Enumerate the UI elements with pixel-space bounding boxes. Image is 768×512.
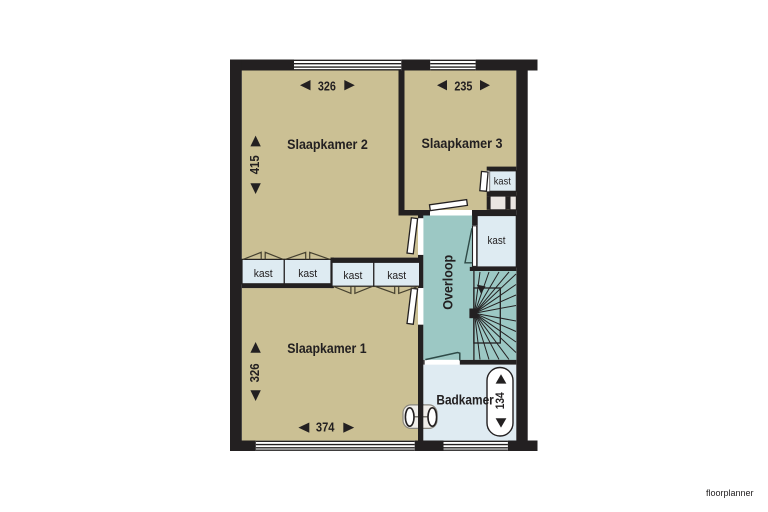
svg-text:floorplanner: floorplanner (706, 488, 754, 498)
svg-text:374: 374 (316, 420, 335, 435)
svg-text:134: 134 (495, 392, 507, 410)
svg-text:kast: kast (298, 268, 317, 280)
svg-text:kast: kast (343, 270, 362, 282)
svg-text:Badkamer: Badkamer (436, 392, 494, 407)
svg-text:Slaapkamer 3: Slaapkamer 3 (422, 136, 503, 151)
svg-text:326: 326 (247, 363, 262, 382)
svg-text:Overloop: Overloop (440, 255, 455, 310)
svg-text:kast: kast (494, 175, 511, 187)
svg-text:415: 415 (247, 155, 262, 174)
svg-text:326: 326 (318, 78, 336, 93)
svg-text:Slaapkamer 2: Slaapkamer 2 (287, 137, 368, 152)
svg-text:kast: kast (387, 270, 406, 282)
svg-text:235: 235 (454, 78, 472, 93)
svg-text:kast: kast (488, 235, 506, 247)
svg-text:Slaapkamer 1: Slaapkamer 1 (287, 341, 367, 356)
svg-text:kast: kast (254, 268, 273, 280)
